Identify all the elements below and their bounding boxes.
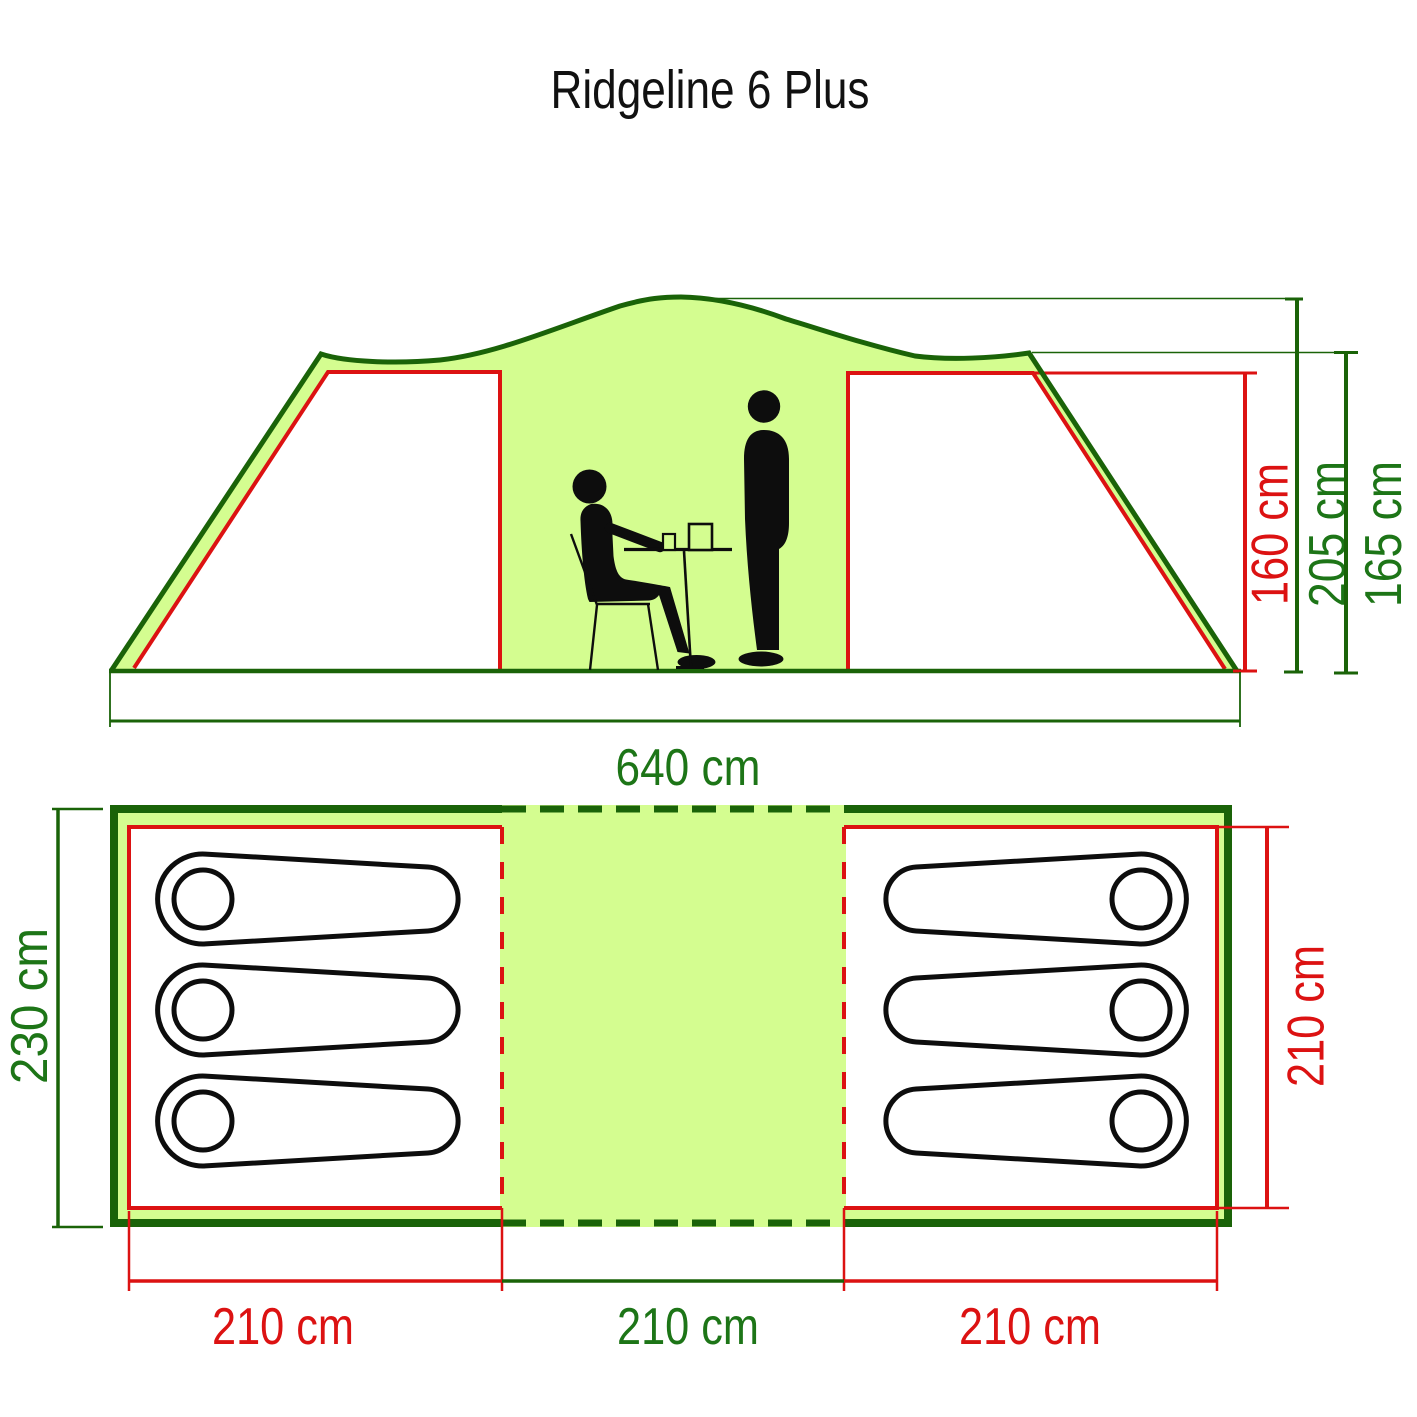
svg-text:Ridgeline 6 Plus: Ridgeline 6 Plus — [551, 60, 870, 120]
svg-text:210 cm: 210 cm — [617, 1298, 759, 1356]
svg-text:230 cm: 230 cm — [1, 928, 59, 1084]
svg-text:210 cm: 210 cm — [959, 1298, 1101, 1356]
svg-text:165 cm: 165 cm — [1355, 461, 1413, 607]
svg-text:210 cm: 210 cm — [212, 1298, 354, 1356]
svg-text:160 cm: 160 cm — [1242, 463, 1300, 605]
svg-text:210 cm: 210 cm — [1278, 945, 1336, 1087]
svg-text:205 cm: 205 cm — [1299, 461, 1357, 607]
svg-text:640 cm: 640 cm — [616, 739, 761, 797]
